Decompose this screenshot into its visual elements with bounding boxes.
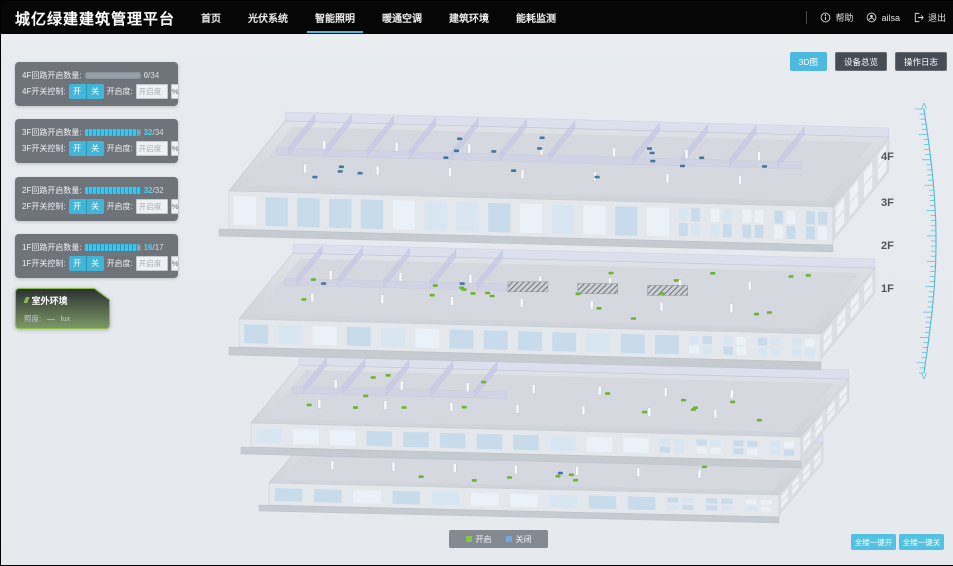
circuit-total: /34 xyxy=(152,128,163,137)
illuminance-value: — xyxy=(47,314,55,323)
switch-group: 开 关 xyxy=(69,84,104,99)
logout-label: 退出 xyxy=(928,11,946,24)
nav-item[interactable]: 暖通空调 xyxy=(382,10,422,25)
circuit-count-value: 32/34 xyxy=(144,128,164,137)
switch-on-button[interactable]: 开 xyxy=(69,199,86,214)
circuit-progress-bar xyxy=(85,72,141,79)
outdoor-env-panel: /// 室外环境 照度: — lux xyxy=(15,288,110,329)
dim-level-input[interactable] xyxy=(136,256,168,271)
floor-tag[interactable]: 3F xyxy=(881,197,894,209)
circuit-row: 3F回路开启数量: 32/34 xyxy=(22,125,171,140)
illuminance-label: 照度: xyxy=(24,313,41,324)
circuit-progress-fill xyxy=(85,244,138,251)
switch-off-button[interactable]: 关 xyxy=(87,141,104,156)
nav-item[interactable]: 光伏系统 xyxy=(248,10,288,25)
dim-level-input[interactable] xyxy=(136,84,168,99)
switch-on-button[interactable]: 开 xyxy=(69,141,86,156)
illuminance-row: 照度: — lux xyxy=(24,313,101,324)
view-button[interactable]: 3D图 xyxy=(790,52,827,71)
dim-label: 开启度: xyxy=(107,143,133,154)
circuit-row: 2F回路开启数量: 32/32 xyxy=(22,183,171,198)
nav-item[interactable]: 智能照明 xyxy=(315,10,355,25)
logout-icon xyxy=(913,12,924,23)
floor-tag[interactable]: 4F xyxy=(881,151,894,163)
switch-on-button[interactable]: 开 xyxy=(69,84,86,99)
switch-group: 开 关 xyxy=(69,256,104,271)
nav-item[interactable]: 首页 xyxy=(201,10,221,25)
circuit-progress-fill xyxy=(85,129,138,136)
circuit-count-label: 4F回路开启数量: xyxy=(22,70,82,81)
switch-control-label: 2F开关控制: xyxy=(22,201,66,212)
main-nav: 首页 光伏系统 智能照明 暖通空调 建筑环境 能耗监测 xyxy=(201,1,556,34)
circuit-progress-bar xyxy=(85,129,141,136)
legend-label: 开启 xyxy=(476,534,492,545)
circuit-total: /32 xyxy=(152,186,163,195)
illuminance-unit: lux xyxy=(61,314,71,323)
switch-row: 4F开关控制: 开 关 开启度: % xyxy=(22,84,171,99)
percent-unit-button[interactable]: % xyxy=(171,199,180,214)
dim-label: 开启度: xyxy=(107,86,133,97)
outdoor-panel-body: /// 室外环境 照度: — lux xyxy=(16,289,109,328)
user-icon xyxy=(866,12,877,23)
platform-title: 城亿绿建建筑管理平台 xyxy=(15,8,175,29)
app-window: 城亿绿建建筑管理平台 首页 光伏系统 智能照明 暖通空调 建筑环境 能耗监测 帮… xyxy=(0,0,953,566)
floor-control-panel: 1F回路开启数量: 16/17 1F开关控制: 开 关 开启度: % xyxy=(15,234,178,278)
dim-label: 开启度: xyxy=(107,201,133,212)
view-button[interactable]: 设备总览 xyxy=(835,52,887,71)
dim-level-input[interactable] xyxy=(136,199,168,214)
all-floors-button[interactable]: 全楼一键关 xyxy=(899,534,944,550)
floor-scale-ruler[interactable] xyxy=(904,101,948,383)
floor-control-panel: 4F回路开启数量: 0/34 4F开关控制: 开 关 开启度: % xyxy=(15,62,178,106)
switch-group: 开 关 xyxy=(69,141,104,156)
circuit-count-label: 2F回路开启数量: xyxy=(22,185,82,196)
switch-control-label: 1F开关控制: xyxy=(22,258,66,269)
help-icon xyxy=(820,12,831,23)
nav-item[interactable]: 建筑环境 xyxy=(449,10,489,25)
floor-tag[interactable]: 1F xyxy=(881,283,894,295)
view-button[interactable]: 操作日志 xyxy=(895,52,947,71)
legend-item: 关闭 xyxy=(506,534,532,545)
circuit-count-value: 16/17 xyxy=(144,243,164,252)
top-navbar: 城亿绿建建筑管理平台 首页 光伏系统 智能照明 暖通空调 建筑环境 能耗监测 帮… xyxy=(1,1,953,34)
outdoor-title-row: /// 室外环境 xyxy=(24,294,101,307)
circuit-progress-bar xyxy=(85,187,141,194)
circuit-count-label: 3F回路开启数量: xyxy=(22,127,82,138)
percent-unit-button[interactable]: % xyxy=(171,256,180,271)
percent-unit-button[interactable]: % xyxy=(171,84,180,99)
legend-swatch xyxy=(466,536,472,542)
legend-item: 开启 xyxy=(466,534,492,545)
logout-button[interactable]: 退出 xyxy=(913,11,946,24)
switch-row: 3F开关控制: 开 关 开启度: % xyxy=(22,141,171,156)
all-floors-button[interactable]: 全楼一键开 xyxy=(851,534,896,550)
floor-control-panel: 3F回路开启数量: 32/34 3F开关控制: 开 关 开启度: % xyxy=(15,119,178,163)
circuit-row: 4F回路开启数量: 0/34 xyxy=(22,68,171,83)
circuit-count-label: 1F回路开启数量: xyxy=(22,242,82,253)
circuit-total: /17 xyxy=(152,243,163,252)
dim-level-input[interactable] xyxy=(136,141,168,156)
switch-group: 开 关 xyxy=(69,199,104,214)
floor-control-panel: 2F回路开启数量: 32/32 2F开关控制: 开 关 开启度: % xyxy=(15,177,178,221)
header-divider xyxy=(806,11,807,24)
switch-off-button[interactable]: 关 xyxy=(87,256,104,271)
outdoor-title: 室外环境 xyxy=(32,294,68,307)
dim-label: 开启度: xyxy=(107,258,133,269)
circuit-count-value: 32/32 xyxy=(144,186,164,195)
circuit-total: /34 xyxy=(148,71,159,80)
user-area: 帮助 ailsa 退出 xyxy=(806,1,946,34)
switch-control-label: 4F开关控制: xyxy=(22,86,66,97)
circuit-progress-fill xyxy=(85,187,141,194)
switch-on-button[interactable]: 开 xyxy=(69,256,86,271)
switch-off-button[interactable]: 关 xyxy=(87,199,104,214)
circuit-count-value: 0/34 xyxy=(144,71,160,80)
legend-swatch xyxy=(506,536,512,542)
legend: 开启 关闭 xyxy=(449,530,548,548)
switch-row: 1F开关控制: 开 关 开启度: % xyxy=(22,256,171,271)
help-label: 帮助 xyxy=(835,11,853,24)
switch-off-button[interactable]: 关 xyxy=(87,84,104,99)
user-menu[interactable]: ailsa xyxy=(866,12,900,23)
percent-unit-button[interactable]: % xyxy=(171,141,180,156)
switch-row: 2F开关控制: 开 关 开启度: % xyxy=(22,199,171,214)
illuminance-icon: /// xyxy=(24,296,28,305)
switch-control-label: 3F开关控制: xyxy=(22,143,66,154)
nav-item[interactable]: 能耗监测 xyxy=(516,10,556,25)
view-switch-group: 3D图 设备总览 操作日志 xyxy=(790,52,947,71)
username: ailsa xyxy=(881,13,900,23)
circuit-progress-bar xyxy=(85,244,141,251)
legend-label: 关闭 xyxy=(516,534,532,545)
floor-tag[interactable]: 2F xyxy=(881,240,894,252)
circuit-row: 1F回路开启数量: 16/17 xyxy=(22,240,171,255)
help-button[interactable]: 帮助 xyxy=(820,11,853,24)
